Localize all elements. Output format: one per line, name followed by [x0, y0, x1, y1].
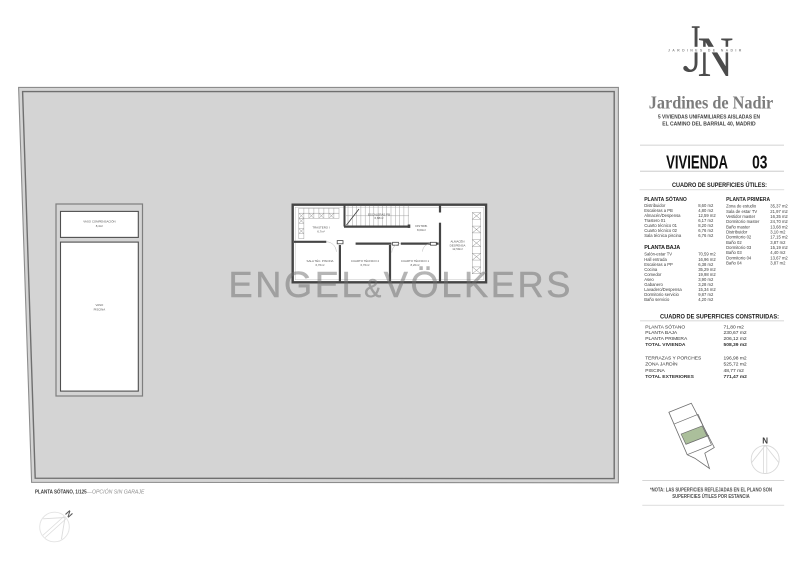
svg-text:SUPERFICIES ÚTILES POR ESTANCI: SUPERFICIES ÚTILES POR ESTANCIA — [672, 493, 750, 500]
svg-text:525,72 m2: 525,72 m2 — [724, 362, 747, 368]
svg-text:PLANTA BAJA: PLANTA BAJA — [645, 330, 678, 336]
svg-text:PLANTA PRIMERA: PLANTA PRIMERA — [645, 336, 688, 342]
svg-text:*NOTA: LAS SUPERFICIES REFLEJA: *NOTA: LAS SUPERFICIES REFLEJADAS EN EL … — [650, 487, 772, 493]
svg-text:N: N — [762, 436, 768, 445]
svg-text:CUADRO DE SUPERFICIES ÚTILES:: CUADRO DE SUPERFICIES ÚTILES: — [672, 182, 767, 189]
svg-text:TOTAL EXTERIORES: TOTAL EXTERIORES — [645, 374, 694, 380]
svg-text:71,80 m2: 71,80 m2 — [724, 324, 745, 330]
svg-text:ENGEL&VÖLKERS: ENGEL&VÖLKERS — [229, 264, 573, 305]
svg-text:3,87 m2: 3,87 m2 — [770, 261, 786, 266]
svg-text:PISCINA: PISCINA — [645, 368, 665, 374]
svg-text:PLANTA SÓTANO, 1/125: PLANTA SÓTANO, 1/125 — [35, 488, 87, 496]
svg-text:—OPCIÓN SIN GARAJE: —OPCIÓN SIN GARAJE — [86, 489, 145, 496]
svg-text:TOTAL VIVIENDA: TOTAL VIVIENDA — [645, 342, 686, 348]
svg-text:CUADRO DE SUPERFICIES CONSTRUI: CUADRO DE SUPERFICIES CONSTRUIDAS: — [660, 314, 779, 321]
svg-text:48,77 m2: 48,77 m2 — [724, 368, 745, 374]
svg-text:Baño 04: Baño 04 — [726, 261, 742, 266]
svg-text:5 VIVIENDAS UNIFAMILIARES AISL: 5 VIVIENDAS UNIFAMILIARES AISLADAS EN — [658, 114, 760, 120]
svg-text:4,20 m2: 4,20 m2 — [698, 297, 714, 302]
svg-text:N: N — [698, 26, 734, 89]
svg-text:VASO COMPENSACIÓN: VASO COMPENSACIÓN — [83, 219, 115, 224]
svg-text:EL CAMINO DEL BARRIAL 40, MADR: EL CAMINO DEL BARRIAL 40, MADRID — [662, 121, 755, 127]
svg-text:771,47 m2: 771,47 m2 — [724, 374, 748, 380]
svg-text:8,4m²: 8,4m² — [96, 224, 103, 228]
svg-text:230,67 m2: 230,67 m2 — [724, 330, 747, 336]
svg-text:PLANTA SÓTANO: PLANTA SÓTANO — [645, 323, 685, 330]
svg-text:03: 03 — [752, 151, 767, 172]
svg-text:6,68m²: 6,68m² — [375, 216, 384, 220]
svg-text:508,39 m2: 508,39 m2 — [724, 342, 748, 348]
svg-text:8,60m²: 8,60m² — [417, 228, 426, 232]
svg-text:6,7m²: 6,7m² — [317, 229, 324, 233]
svg-text:12,59m²: 12,59m² — [452, 247, 463, 251]
svg-text:VASO: VASO — [95, 303, 104, 307]
svg-text:ZONA JARDÍN: ZONA JARDÍN — [645, 361, 678, 368]
svg-text:TERRAZAS Y PORCHES: TERRAZAS Y PORCHES — [645, 355, 702, 361]
svg-text:196,98 m2: 196,98 m2 — [724, 355, 747, 361]
svg-text:Baño servicio: Baño servicio — [644, 297, 670, 302]
svg-text:206,12 m2: 206,12 m2 — [724, 336, 747, 342]
svg-text:PLANTA PRIMERA: PLANTA PRIMERA — [726, 197, 770, 203]
svg-text:PLANTA BAJA: PLANTA BAJA — [644, 245, 680, 251]
svg-text:JARDINES DE NADIR: JARDINES DE NADIR — [668, 48, 744, 52]
svg-text:6,76 m2: 6,76 m2 — [698, 233, 714, 238]
svg-text:Sala técnica piscina: Sala técnica piscina — [644, 233, 682, 238]
svg-text:Jardines de Nadir: Jardines de Nadir — [649, 92, 774, 112]
svg-text:PISCINA: PISCINA — [94, 308, 106, 312]
svg-text:VIVIENDA: VIVIENDA — [666, 151, 728, 172]
